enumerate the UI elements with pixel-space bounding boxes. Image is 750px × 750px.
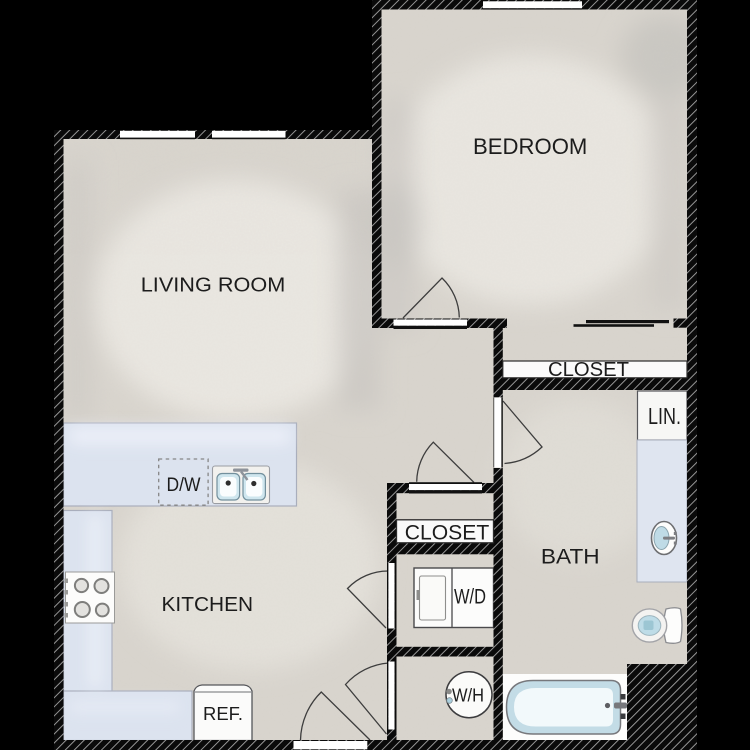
svg-text:LIN.: LIN. xyxy=(648,403,681,429)
svg-text:REF.: REF. xyxy=(203,704,243,724)
svg-text:LIVING ROOM: LIVING ROOM xyxy=(141,274,286,297)
svg-text:D/W: D/W xyxy=(167,475,201,496)
svg-text:BEDROOM: BEDROOM xyxy=(473,134,587,159)
svg-text:BATH: BATH xyxy=(541,545,600,569)
svg-text:W/H: W/H xyxy=(452,686,484,706)
svg-text:KITCHEN: KITCHEN xyxy=(162,594,254,616)
svg-text:W/D: W/D xyxy=(454,586,486,609)
svg-text:CLOSET: CLOSET xyxy=(405,521,490,545)
svg-text:CLOSET: CLOSET xyxy=(548,359,629,381)
